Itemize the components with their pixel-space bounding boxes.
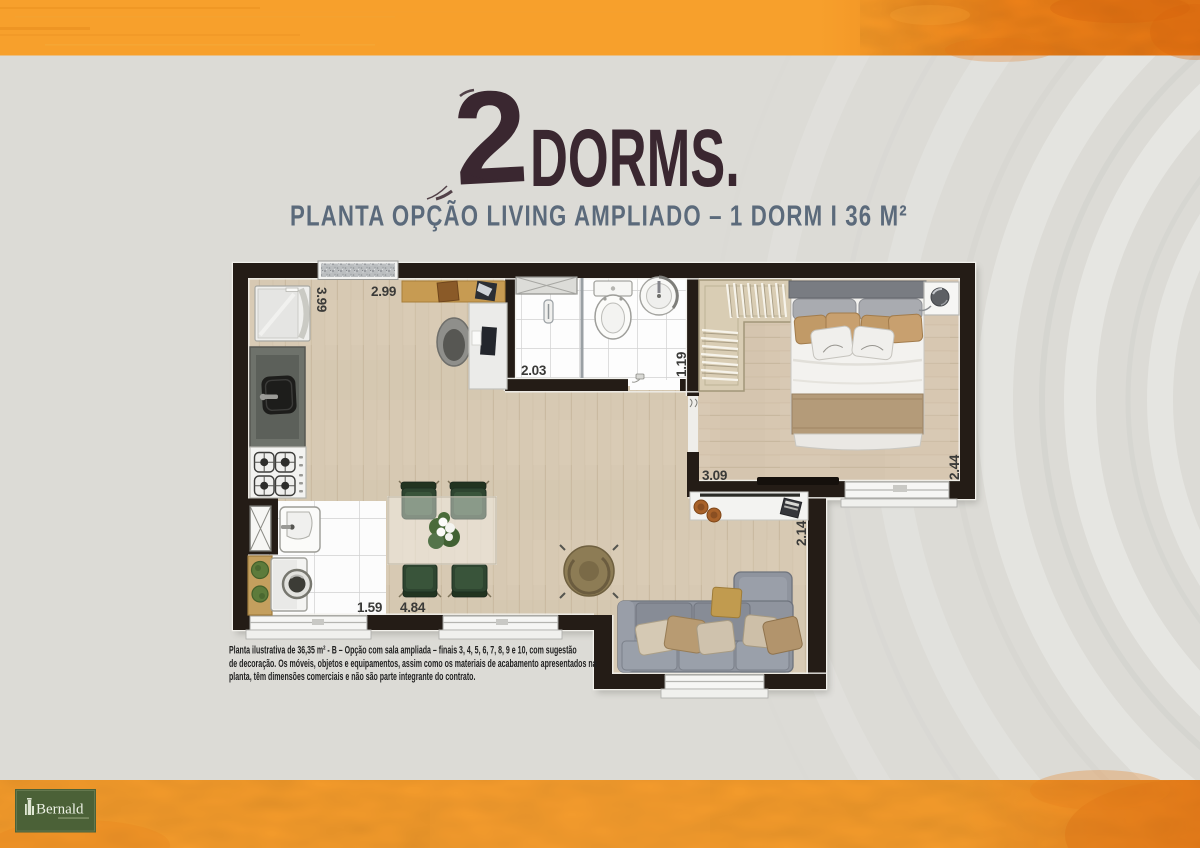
svg-text:2.14: 2.14 [794,520,809,546]
svg-text:Planta ilustrativa de 36,35 m²: Planta ilustrativa de 36,35 m² - B – Opç… [229,644,577,656]
svg-text:2.44: 2.44 [947,454,962,480]
svg-text:2: 2 [450,62,531,213]
svg-text:DORMS.: DORMS. [530,112,740,204]
svg-text:de decoração. Os móveis, objet: de decoração. Os móveis, objetos e equip… [229,657,597,669]
svg-text:3.09: 3.09 [702,468,727,483]
svg-text:4.84: 4.84 [400,600,426,615]
svg-text:Bernald: Bernald [36,802,84,818]
svg-text:2.03: 2.03 [521,363,547,378]
svg-text:1.59: 1.59 [357,600,382,615]
svg-text:planta, têm dimensões comercia: planta, têm dimensões comerciais e não s… [229,670,475,682]
svg-text:3.99: 3.99 [314,287,329,312]
svg-text:1.19: 1.19 [674,352,689,377]
svg-text:PLANTA OPÇÃO LIVING AMPLIADO –: PLANTA OPÇÃO LIVING AMPLIADO – 1 DORM I … [290,199,908,233]
svg-text:2.99: 2.99 [371,284,396,299]
